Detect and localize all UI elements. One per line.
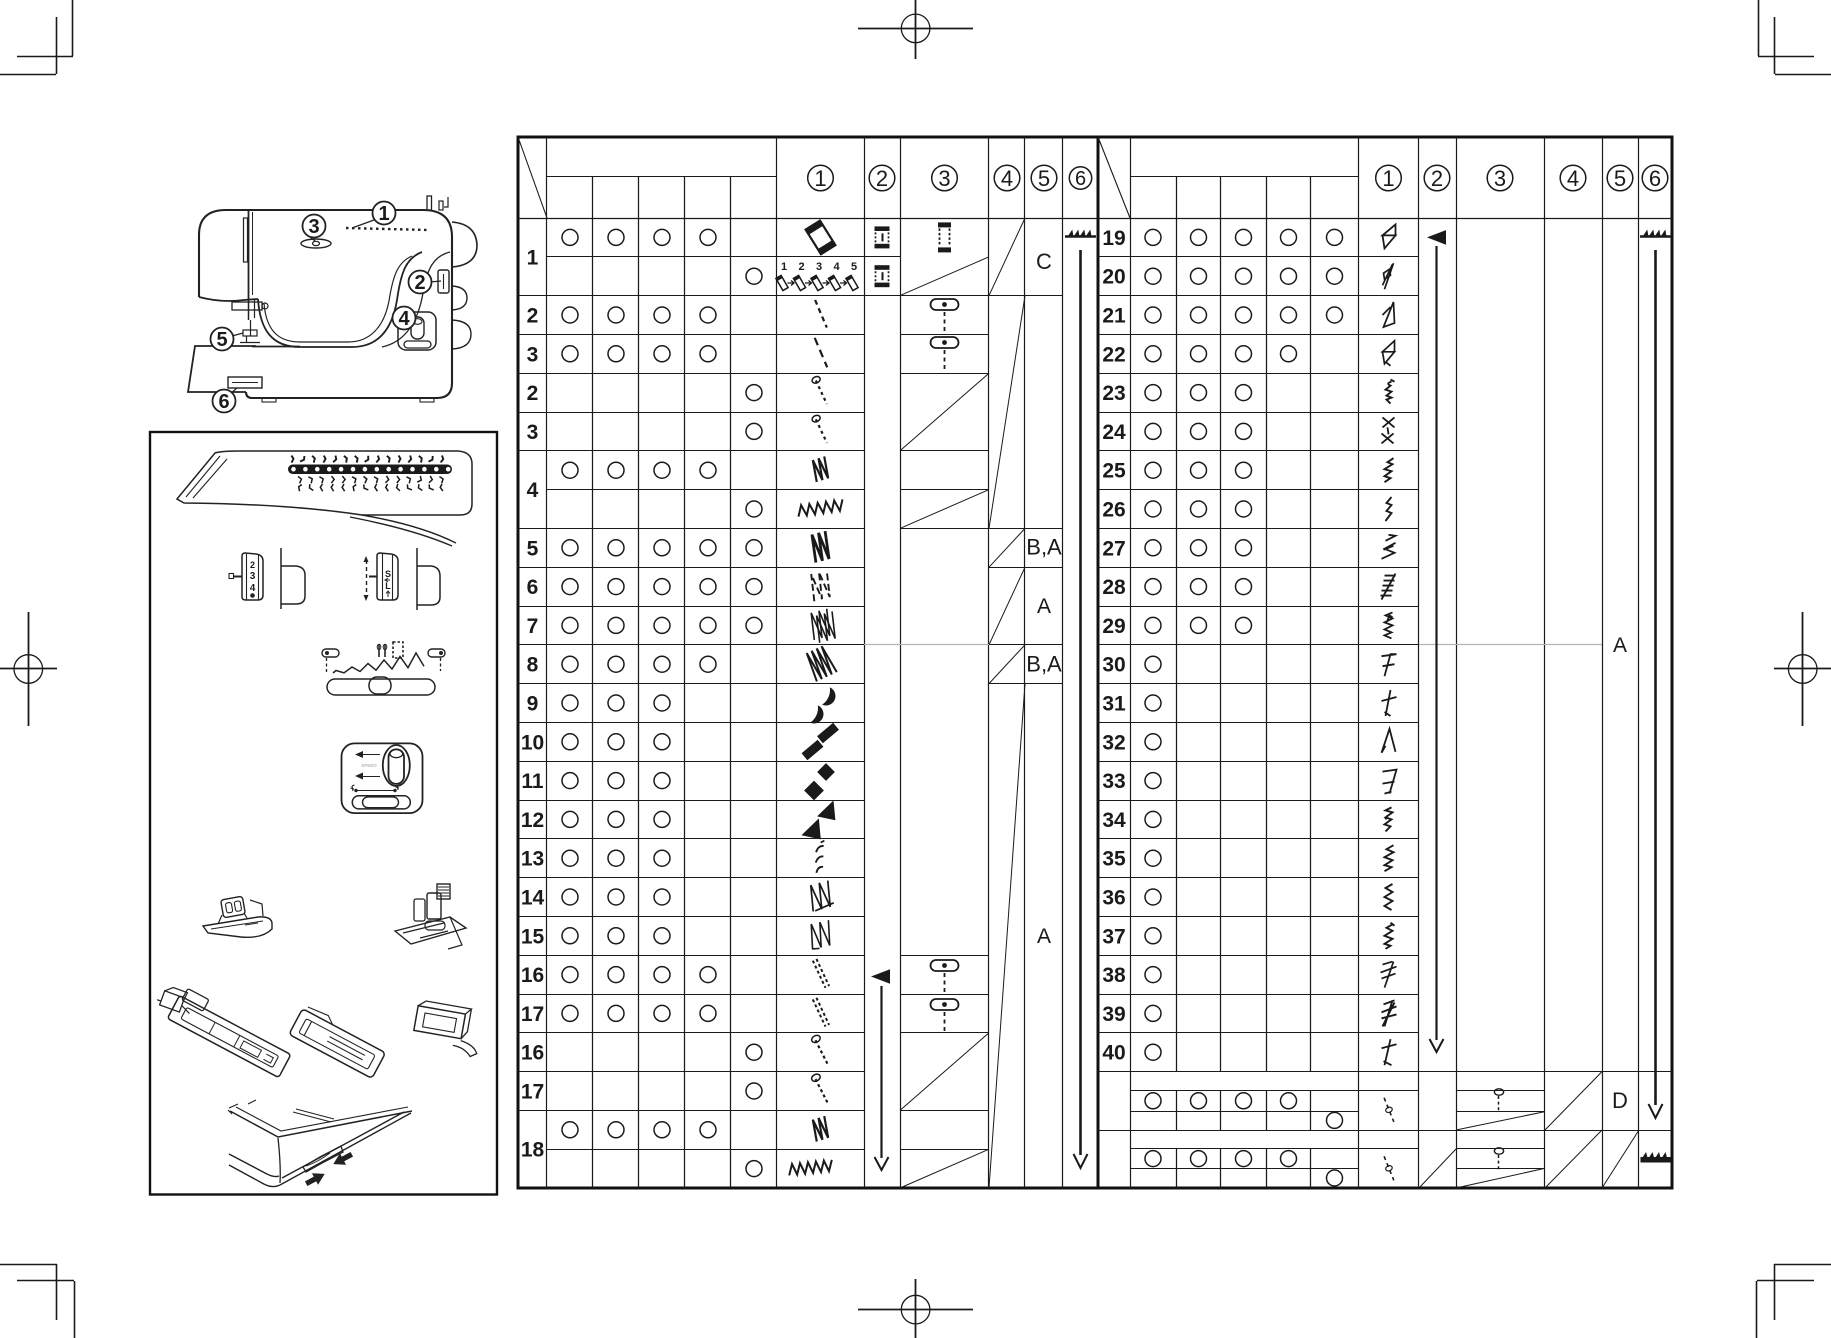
svg-text:2: 2 <box>527 382 539 405</box>
svg-text:22: 22 <box>1102 343 1125 366</box>
svg-text:2: 2 <box>798 261 804 273</box>
svg-text:40: 40 <box>1102 1042 1125 1065</box>
svg-text:37: 37 <box>1102 925 1125 948</box>
svg-text:3: 3 <box>527 421 539 444</box>
svg-text:4: 4 <box>398 308 410 330</box>
svg-text:38: 38 <box>1102 964 1126 987</box>
svg-text:2: 2 <box>527 305 539 328</box>
svg-text:A: A <box>1037 925 1051 948</box>
svg-text:24: 24 <box>1102 421 1126 444</box>
svg-text:16: 16 <box>521 1042 544 1065</box>
svg-text:11: 11 <box>521 770 544 793</box>
svg-text:4: 4 <box>250 583 256 594</box>
svg-text:A: A <box>1037 595 1051 618</box>
svg-text:6: 6 <box>218 391 229 413</box>
svg-text:B,A: B,A <box>1026 535 1062 560</box>
svg-text:31: 31 <box>1102 693 1126 716</box>
svg-text:9: 9 <box>527 693 539 716</box>
svg-text:29: 29 <box>1102 615 1125 638</box>
svg-text:12: 12 <box>521 809 544 832</box>
svg-text:C: C <box>1036 249 1052 274</box>
svg-text:13: 13 <box>521 848 544 871</box>
svg-text:14: 14 <box>521 887 545 910</box>
svg-text:2: 2 <box>876 166 888 191</box>
svg-text:18: 18 <box>521 1139 545 1162</box>
svg-text:28: 28 <box>1102 576 1126 599</box>
svg-text:35: 35 <box>1102 848 1126 871</box>
svg-text:16: 16 <box>521 964 544 987</box>
svg-text:4: 4 <box>1567 166 1579 191</box>
svg-text:23: 23 <box>1102 382 1125 405</box>
svg-text:32: 32 <box>1102 731 1125 754</box>
svg-text:39: 39 <box>1102 1003 1125 1026</box>
svg-text:30: 30 <box>1102 654 1125 677</box>
svg-text:7: 7 <box>527 615 539 638</box>
svg-text:5: 5 <box>1614 166 1626 191</box>
svg-text:10: 10 <box>521 731 544 754</box>
svg-text:1: 1 <box>1382 166 1394 191</box>
svg-text:3: 3 <box>938 166 950 191</box>
svg-text:3: 3 <box>308 216 319 238</box>
svg-text:B,A: B,A <box>1026 652 1062 677</box>
svg-text:4: 4 <box>527 479 539 502</box>
svg-text:A: A <box>1613 634 1627 657</box>
svg-text:2: 2 <box>250 560 255 570</box>
svg-text:15: 15 <box>521 925 545 948</box>
svg-text:4: 4 <box>833 261 840 273</box>
svg-text:5: 5 <box>851 261 857 273</box>
svg-text:6: 6 <box>1649 166 1661 191</box>
svg-text:1: 1 <box>378 203 389 225</box>
svg-text:6: 6 <box>1075 168 1086 190</box>
svg-text:2: 2 <box>1431 166 1443 191</box>
svg-text:20: 20 <box>1102 266 1125 289</box>
svg-text:8: 8 <box>527 654 539 677</box>
svg-text:S: S <box>385 569 391 579</box>
svg-text:3: 3 <box>250 571 256 582</box>
svg-text:19: 19 <box>1102 227 1125 250</box>
svg-text:2: 2 <box>414 272 425 294</box>
svg-text:21: 21 <box>1102 305 1126 328</box>
svg-text:5: 5 <box>216 329 227 351</box>
svg-text:17: 17 <box>521 1081 544 1104</box>
svg-text:36: 36 <box>1102 887 1125 910</box>
svg-text:3: 3 <box>1494 166 1506 191</box>
svg-text:27: 27 <box>1102 537 1125 560</box>
svg-text:1: 1 <box>527 246 539 269</box>
svg-text:SPEED: SPEED <box>361 763 377 768</box>
svg-text:1: 1 <box>781 261 787 273</box>
svg-text:1: 1 <box>814 166 826 191</box>
svg-text:33: 33 <box>1102 770 1125 793</box>
svg-text:5: 5 <box>1038 166 1050 191</box>
svg-text:3: 3 <box>527 343 539 366</box>
svg-text:34: 34 <box>1102 809 1126 832</box>
svg-text:26: 26 <box>1102 499 1125 522</box>
svg-text:25: 25 <box>1102 460 1126 483</box>
svg-text:17: 17 <box>521 1003 544 1026</box>
svg-text:D: D <box>1612 1088 1628 1113</box>
svg-text:4: 4 <box>1001 166 1013 191</box>
svg-text:5: 5 <box>527 537 539 560</box>
svg-text:L: L <box>385 581 391 591</box>
svg-text:3: 3 <box>816 261 822 273</box>
svg-text:6: 6 <box>527 576 539 599</box>
